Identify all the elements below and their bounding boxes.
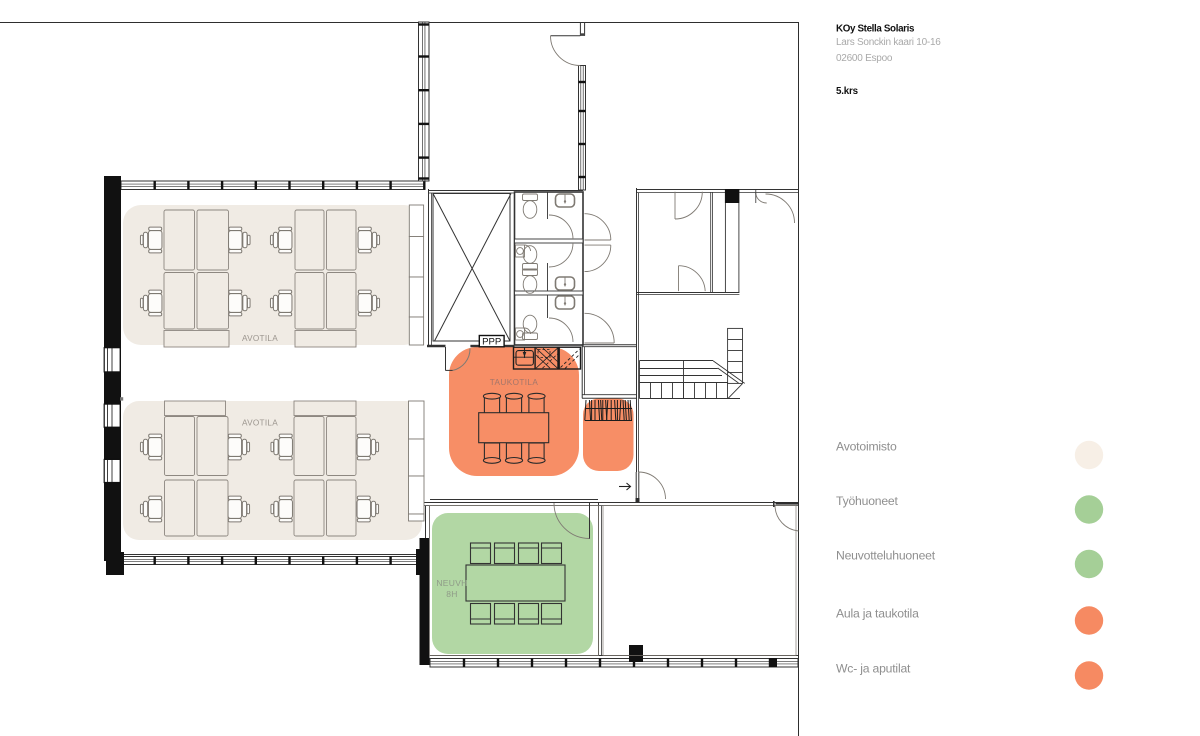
svg-text:Työhuoneet: Työhuoneet	[836, 494, 899, 508]
svg-text:Lars Sonckin kaari 10-16: Lars Sonckin kaari 10-16	[836, 37, 941, 48]
svg-text:Aula ja taukotila: Aula ja taukotila	[836, 607, 919, 621]
svg-text:8H: 8H	[446, 589, 457, 599]
svg-text:KOy Stella Solaris: KOy Stella Solaris	[836, 24, 915, 35]
svg-text:Avotoimisto: Avotoimisto	[836, 440, 897, 454]
svg-text:AVOTILA: AVOTILA	[242, 419, 278, 428]
svg-text:Wc- ja aputilat: Wc- ja aputilat	[836, 661, 911, 675]
svg-text:02600 Espoo: 02600 Espoo	[836, 53, 893, 64]
svg-text:PPP: PPP	[482, 337, 501, 348]
svg-text:NEUVH: NEUVH	[436, 578, 467, 588]
svg-text:Neuvotteluhuoneet: Neuvotteluhuoneet	[836, 549, 936, 563]
svg-text:TAUKOTILA: TAUKOTILA	[490, 378, 539, 387]
svg-text:AVOTILA: AVOTILA	[242, 334, 278, 343]
svg-text:5.krs: 5.krs	[836, 86, 859, 97]
